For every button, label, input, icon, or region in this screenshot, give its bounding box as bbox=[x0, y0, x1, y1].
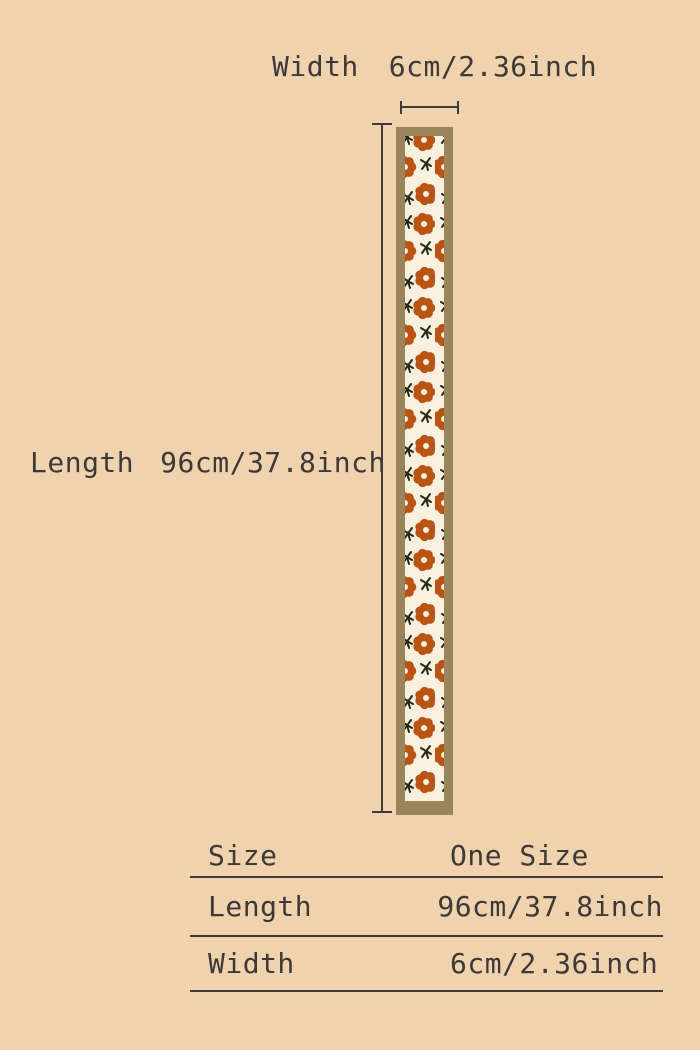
size-table: Size One Size Length 96cm/37.8inch Width… bbox=[190, 835, 663, 992]
table-row: Width 6cm/2.36inch bbox=[190, 937, 663, 992]
strip-floral-pattern bbox=[405, 136, 444, 801]
width-label: Width bbox=[272, 50, 359, 83]
length-measure-line bbox=[372, 123, 392, 813]
width-measure-bracket bbox=[400, 101, 459, 114]
table-row-value: 6cm/2.36inch bbox=[450, 947, 663, 980]
table-row: Size One Size bbox=[190, 835, 663, 878]
width-dimension-label: Width 6cm/2.36inch bbox=[272, 50, 597, 83]
table-row-value: 96cm/37.8inch bbox=[437, 890, 663, 923]
length-value: 96cm/37.8inch bbox=[160, 446, 386, 479]
product-strip-image bbox=[396, 127, 453, 815]
size-chart-image: Width 6cm/2.36inch Length 96cm/37.8inch bbox=[0, 0, 700, 1050]
table-row-label: Size bbox=[190, 839, 450, 872]
table-row-label: Width bbox=[190, 947, 450, 980]
table-row-value: One Size bbox=[450, 839, 663, 872]
table-row: Length 96cm/37.8inch bbox=[190, 878, 663, 937]
length-dimension-label: Length 96cm/37.8inch bbox=[30, 446, 386, 479]
width-value: 6cm/2.36inch bbox=[389, 50, 597, 83]
length-label: Length bbox=[30, 446, 134, 479]
table-row-label: Length bbox=[190, 890, 437, 923]
